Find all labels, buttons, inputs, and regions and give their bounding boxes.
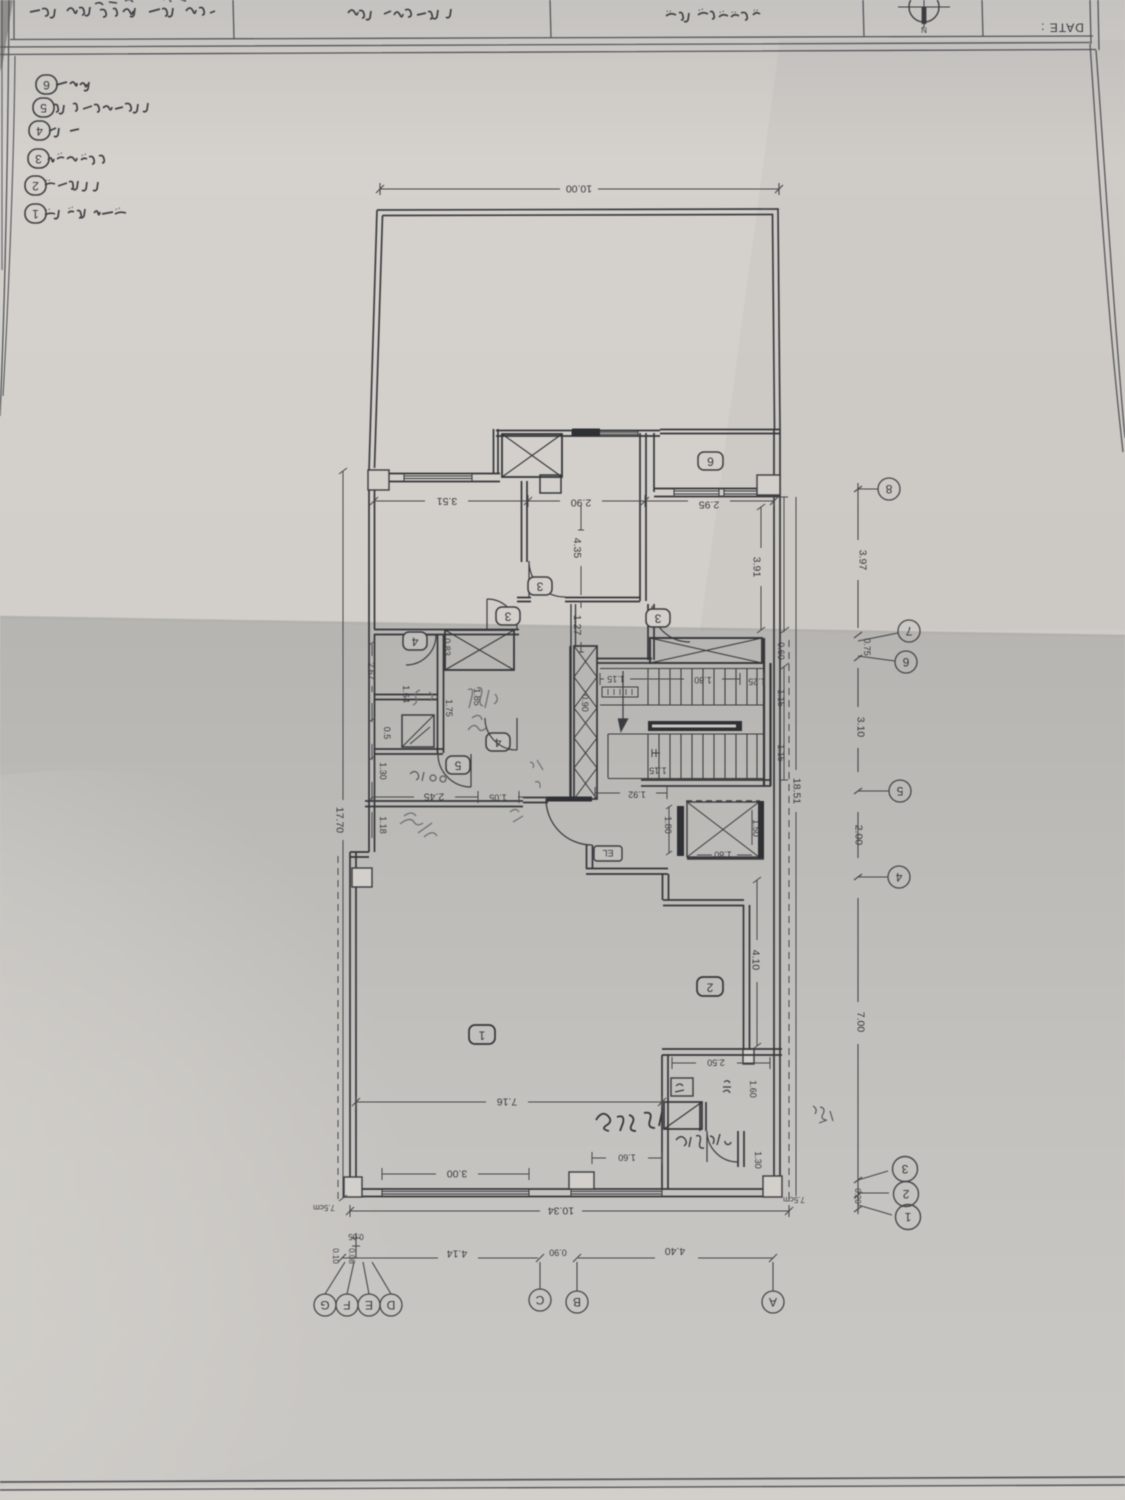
svg-text:2.67: 2.67 xyxy=(366,662,376,680)
svg-text:4: 4 xyxy=(494,736,501,750)
svg-text:3.97: 3.97 xyxy=(857,550,869,571)
svg-text:N: N xyxy=(921,25,927,34)
svg-text:8: 8 xyxy=(885,482,892,496)
svg-text:1.64: 1.64 xyxy=(401,685,411,703)
svg-text:1.80: 1.80 xyxy=(663,816,673,834)
svg-text:G: G xyxy=(320,1298,329,1312)
svg-text:3.10: 3.10 xyxy=(855,717,867,738)
svg-text:4: 4 xyxy=(36,124,43,138)
svg-text:4.40: 4.40 xyxy=(665,1245,686,1257)
svg-text:1: 1 xyxy=(904,1210,911,1224)
svg-text:7: 7 xyxy=(905,624,912,638)
svg-text:1.80: 1.80 xyxy=(694,675,712,685)
svg-text:E: E xyxy=(365,1298,373,1312)
svg-text:17.70: 17.70 xyxy=(334,807,346,833)
svg-text:0.20: 0.20 xyxy=(853,1188,862,1204)
svg-text:7.5cm: 7.5cm xyxy=(313,1203,335,1212)
svg-text:1.15: 1.15 xyxy=(776,689,786,707)
svg-text:D: D xyxy=(386,1298,395,1312)
svg-text:3: 3 xyxy=(654,612,661,626)
svg-text:A: A xyxy=(769,1295,777,1309)
svg-text:7.00: 7.00 xyxy=(855,1012,867,1033)
svg-text:3: 3 xyxy=(536,580,543,594)
svg-text:4: 4 xyxy=(411,635,418,649)
svg-text:1.18: 1.18 xyxy=(378,816,388,834)
svg-text:0.10: 0.10 xyxy=(331,1248,340,1264)
svg-text:0.90: 0.90 xyxy=(549,1248,567,1258)
svg-text:1.05: 1.05 xyxy=(489,793,507,803)
svg-text:7.5cm: 7.5cm xyxy=(783,1195,805,1204)
svg-text:4.14: 4.14 xyxy=(447,1248,468,1260)
svg-text:DATE :: DATE : xyxy=(1040,21,1084,35)
svg-text:2.50: 2.50 xyxy=(707,1058,725,1068)
svg-text:0.90: 0.90 xyxy=(580,694,590,712)
svg-text:3: 3 xyxy=(35,152,42,166)
svg-text:0.75: 0.75 xyxy=(862,638,872,656)
svg-text:2.95: 2.95 xyxy=(699,499,720,511)
svg-text:2.00: 2.00 xyxy=(853,825,865,846)
svg-text:1.27: 1.27 xyxy=(571,615,583,636)
svg-text:4.10: 4.10 xyxy=(750,950,762,971)
svg-text:1: 1 xyxy=(478,1029,485,1043)
svg-text:6: 6 xyxy=(902,655,909,669)
svg-text:0.05: 0.05 xyxy=(348,1232,364,1241)
svg-text:3: 3 xyxy=(504,610,511,624)
svg-text:4: 4 xyxy=(895,870,902,884)
svg-text:6: 6 xyxy=(43,78,50,92)
svg-text:5: 5 xyxy=(454,759,461,773)
svg-text:0.60: 0.60 xyxy=(776,642,786,660)
svg-text:1.15: 1.15 xyxy=(776,744,786,762)
svg-text:3.00: 3.00 xyxy=(447,1168,468,1180)
svg-text:1.15: 1.15 xyxy=(649,766,667,776)
svg-text:C: C xyxy=(535,1293,544,1307)
svg-text:EL: EL xyxy=(602,848,613,858)
svg-text:2: 2 xyxy=(32,179,39,193)
svg-text:0.5: 0.5 xyxy=(382,727,392,740)
svg-text:1.60: 1.60 xyxy=(748,1080,758,1098)
svg-text:1.15: 1.15 xyxy=(607,674,625,684)
svg-text:5: 5 xyxy=(40,101,47,115)
svg-text:0.83: 0.83 xyxy=(442,638,452,656)
svg-text:3: 3 xyxy=(901,1162,908,1176)
svg-text:7.16: 7.16 xyxy=(497,1096,518,1108)
svg-text:6: 6 xyxy=(707,455,714,469)
svg-text:1.75: 1.75 xyxy=(444,699,454,717)
svg-text:B: B xyxy=(573,1295,581,1309)
svg-text:2: 2 xyxy=(706,981,713,995)
svg-text:3.91: 3.91 xyxy=(751,557,763,578)
svg-text:1.92: 1.92 xyxy=(628,790,646,800)
svg-text:5: 5 xyxy=(896,784,903,798)
svg-text:18.51: 18.51 xyxy=(791,778,803,804)
svg-text:1.30: 1.30 xyxy=(753,1151,763,1169)
svg-text:1.25: 1.25 xyxy=(748,677,766,687)
svg-text:0.08: 0.08 xyxy=(347,1248,356,1264)
svg-text:3.51: 3.51 xyxy=(437,495,458,507)
svg-text:F: F xyxy=(343,1298,350,1312)
svg-text:10.00: 10.00 xyxy=(566,183,592,195)
svg-text:1.60: 1.60 xyxy=(618,1153,636,1163)
svg-text:2: 2 xyxy=(902,1187,909,1201)
svg-text:4.35: 4.35 xyxy=(571,538,583,559)
svg-text:2.45: 2.45 xyxy=(424,791,445,803)
svg-text:1: 1 xyxy=(32,207,39,221)
svg-text:1.30: 1.30 xyxy=(378,762,388,780)
svg-text:10.34: 10.34 xyxy=(548,1205,574,1217)
